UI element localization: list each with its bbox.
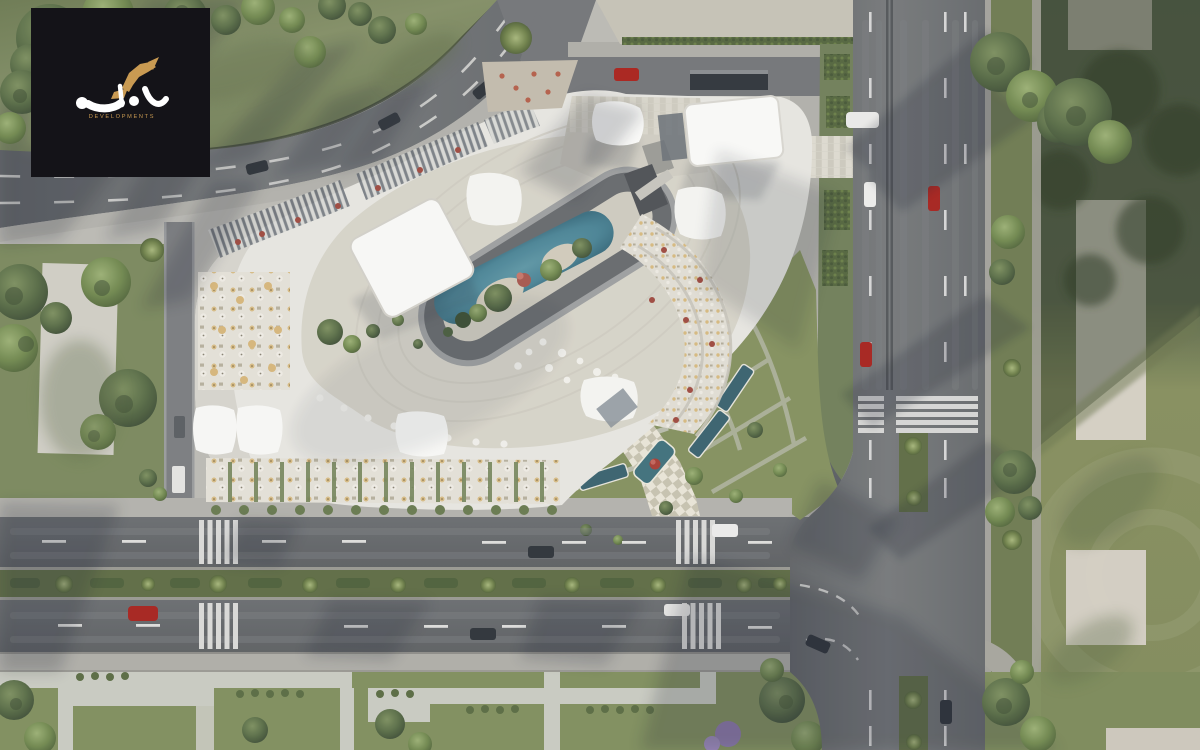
svg-text:DEVELOPMENTS: DEVELOPMENTS	[89, 114, 155, 120]
